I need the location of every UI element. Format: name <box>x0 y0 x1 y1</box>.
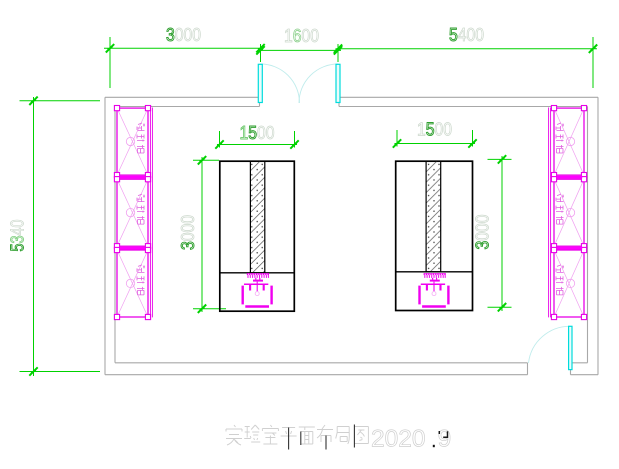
svg-text:3000: 3000 <box>473 215 493 250</box>
svg-text:1500: 1500 <box>240 123 275 143</box>
svg-text:2020: 2020 <box>371 425 426 452</box>
svg-text:1500: 1500 <box>417 120 452 140</box>
svg-text:3000: 3000 <box>166 25 201 45</box>
svg-text:5400: 5400 <box>449 25 484 45</box>
svg-text:1600: 1600 <box>284 26 319 46</box>
svg-text:9: 9 <box>438 425 452 452</box>
svg-text:5340: 5340 <box>8 220 28 252</box>
svg-text:3000: 3000 <box>178 215 198 250</box>
